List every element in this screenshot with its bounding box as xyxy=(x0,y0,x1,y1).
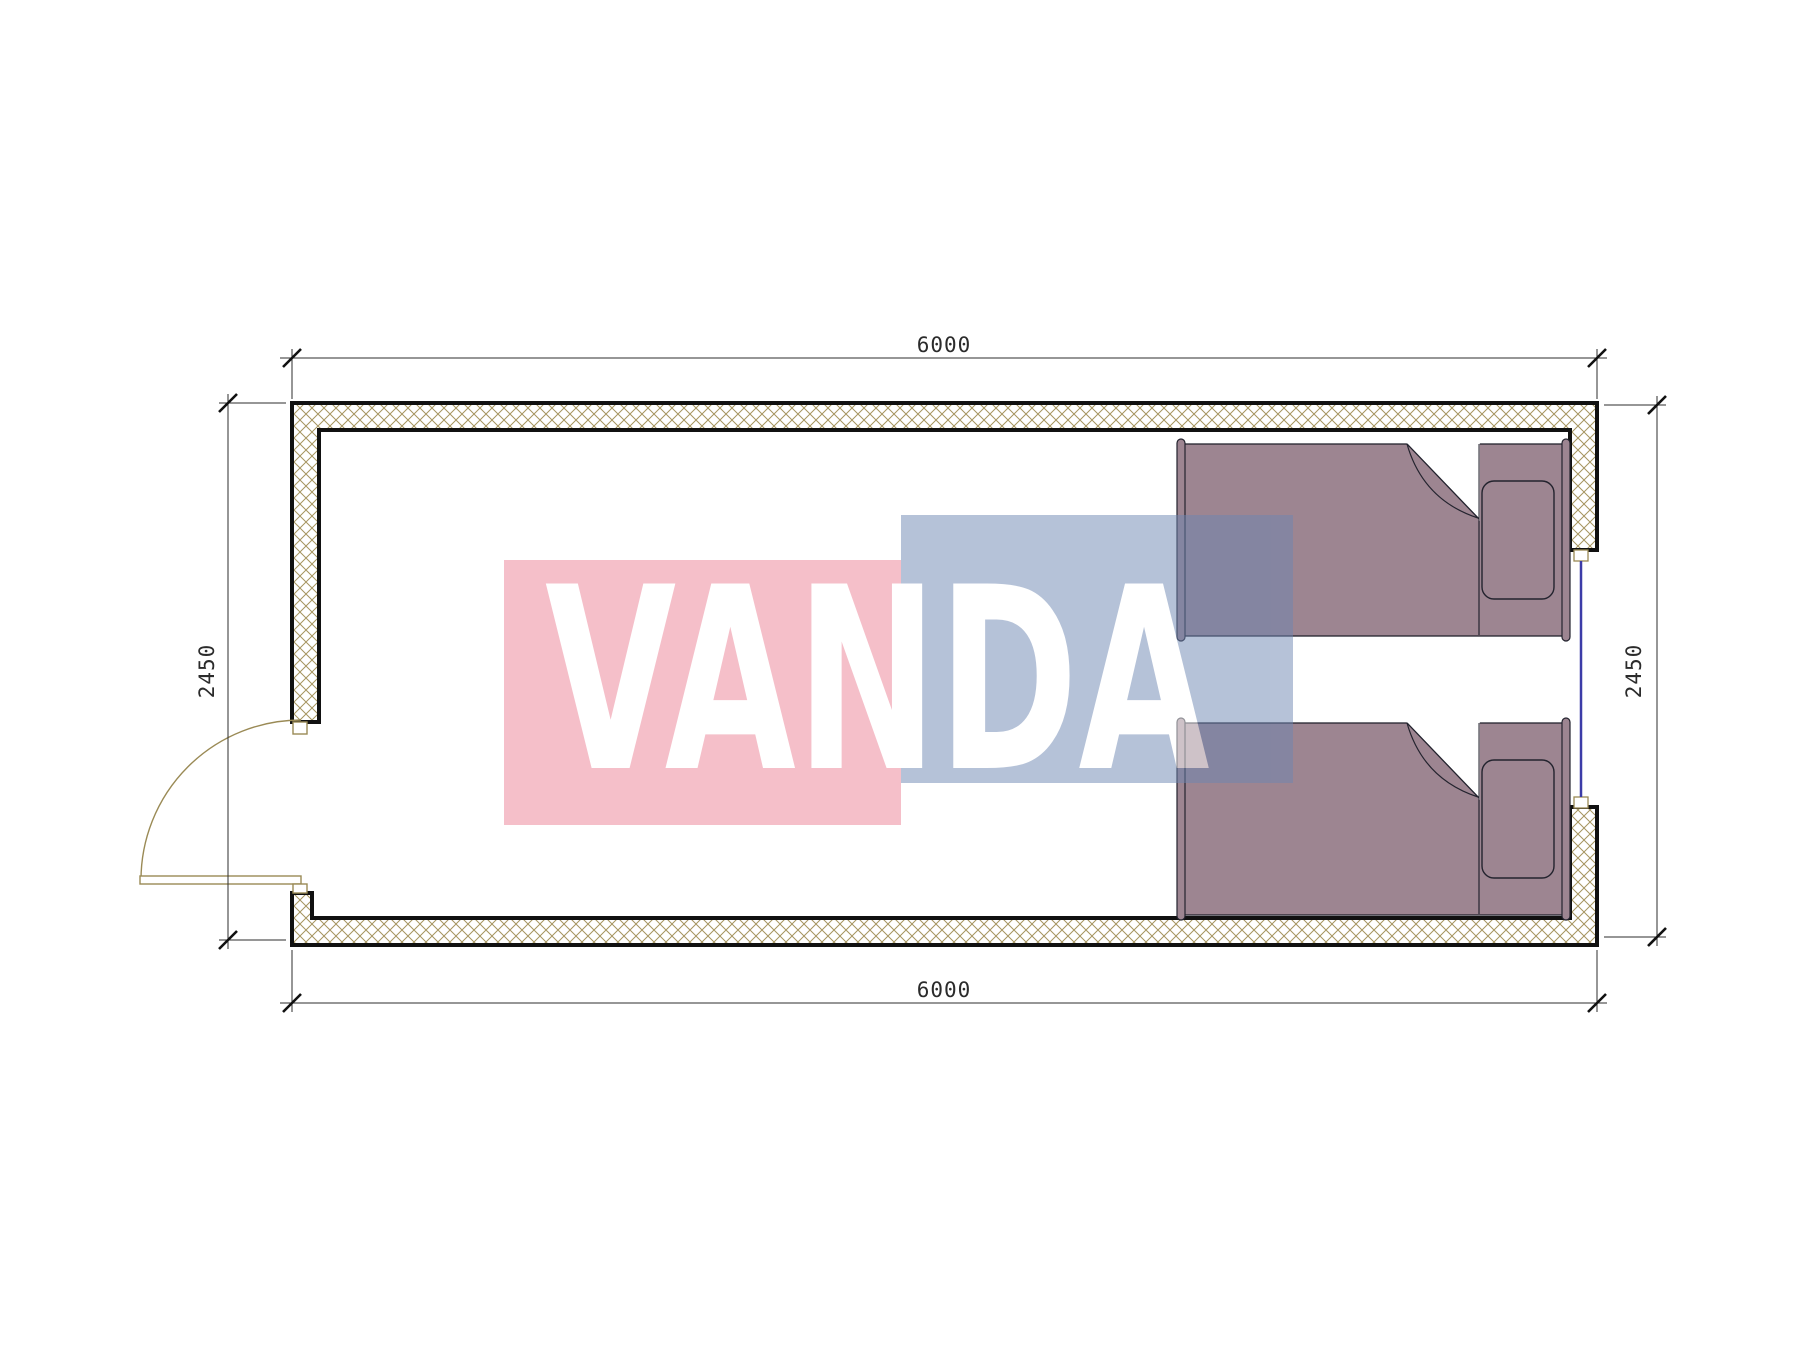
watermark-text: VANDA xyxy=(545,533,1210,828)
bed-pillow xyxy=(1482,481,1554,599)
door xyxy=(140,720,307,893)
bed-pillow xyxy=(1482,760,1554,878)
door-swing-arc-icon xyxy=(141,720,301,880)
window-jamb-bottom xyxy=(1574,797,1588,808)
dim-right-label: 2450 xyxy=(1622,644,1646,699)
window xyxy=(1574,550,1588,808)
bed-headboard xyxy=(1562,718,1570,920)
window-jamb-top xyxy=(1574,550,1588,561)
dim-bottom-label: 6000 xyxy=(917,978,972,1002)
floor-plan-page: 6000 6000 2450 2450 VANDA xyxy=(0,0,1800,1350)
dim-left-label: 2450 xyxy=(195,644,219,699)
door-jamb-top xyxy=(293,722,307,734)
watermark-logo: VANDA xyxy=(504,515,1293,828)
bed-headboard xyxy=(1562,439,1570,641)
dim-top-label: 6000 xyxy=(917,333,972,357)
door-leaf xyxy=(140,876,301,884)
door-jamb-bottom xyxy=(293,884,307,893)
floor-plan-svg: 6000 6000 2450 2450 VANDA xyxy=(0,0,1800,1350)
